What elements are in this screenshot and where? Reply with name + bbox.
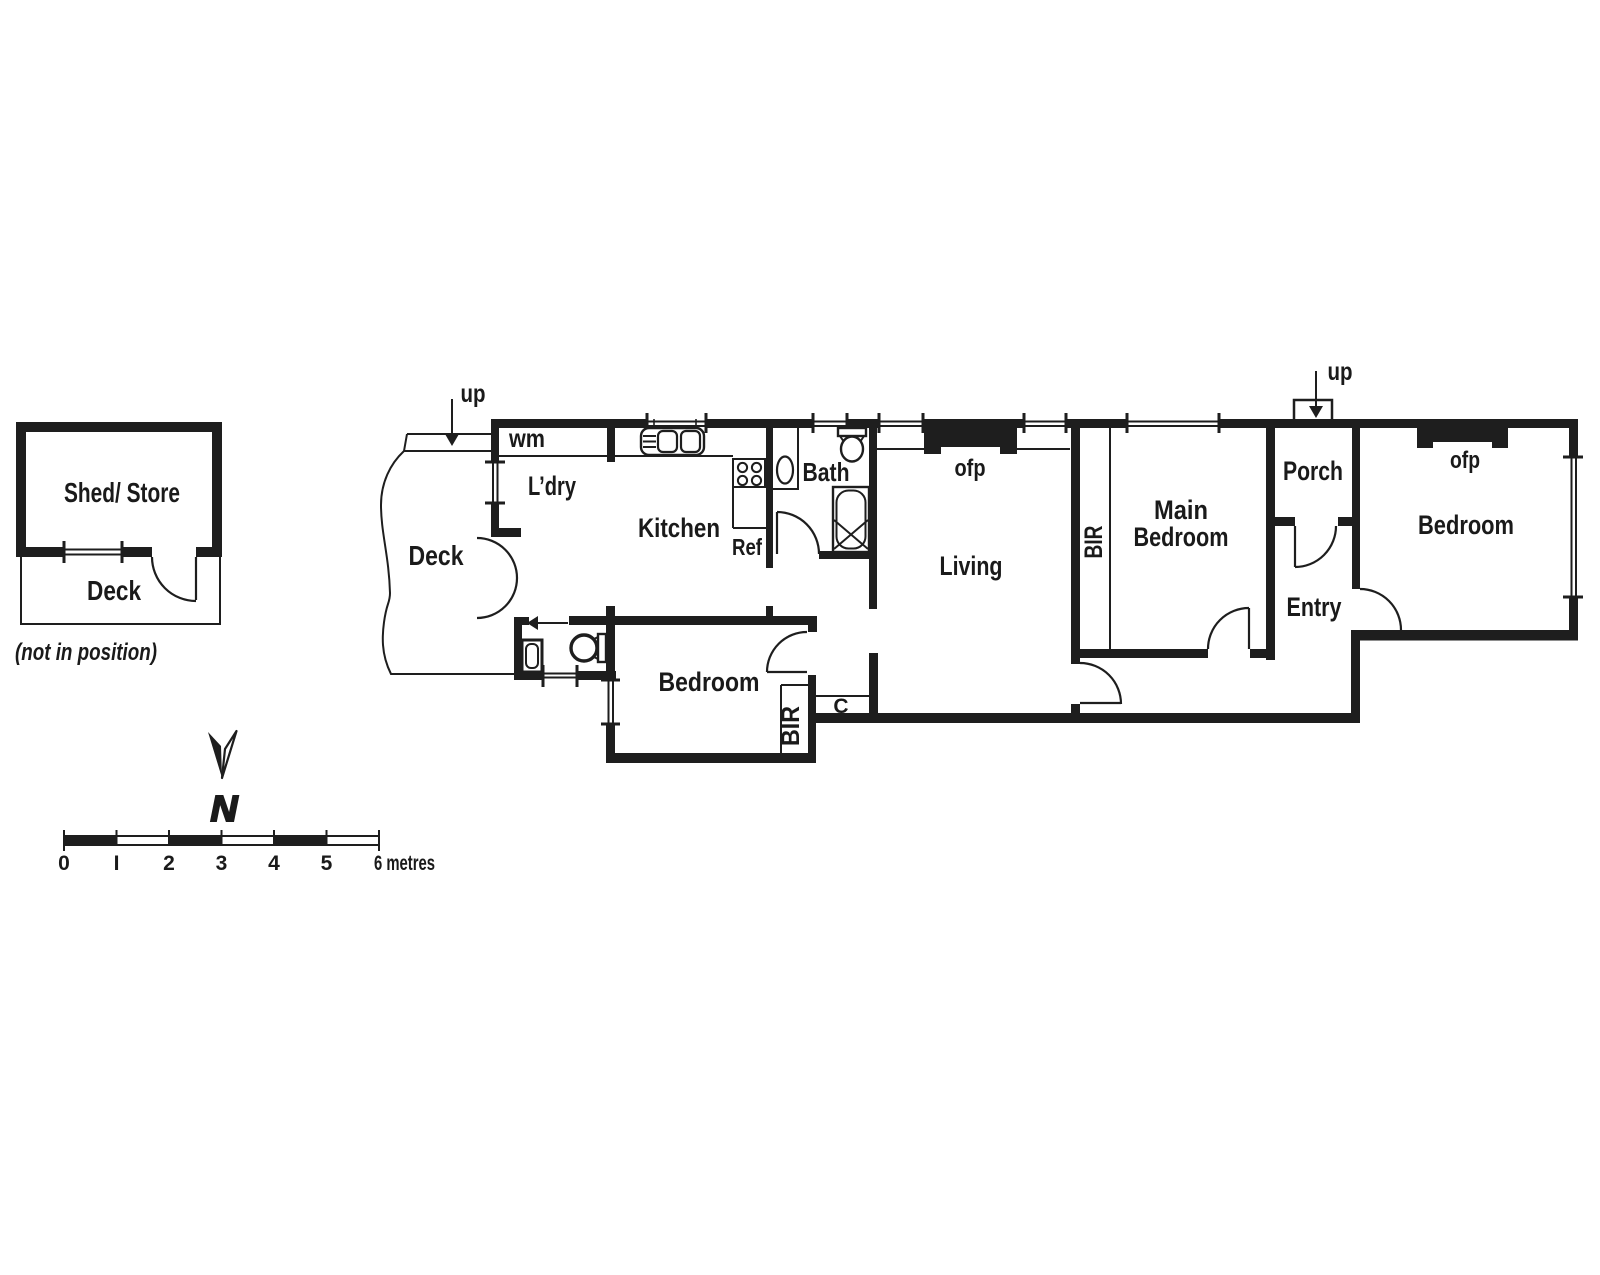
svg-text:ofp: ofp (1450, 447, 1480, 474)
svg-text:Shed/ Store: Shed/ Store (64, 477, 180, 508)
svg-text:BIR: BIR (777, 706, 805, 746)
svg-text:5: 5 (321, 852, 333, 875)
svg-text:up: up (461, 380, 486, 408)
svg-text:up: up (1328, 358, 1353, 386)
svg-text:BIR: BIR (1080, 526, 1108, 559)
svg-text:wm: wm (508, 425, 545, 453)
svg-text:Bedroom: Bedroom (659, 667, 760, 697)
svg-text:6 metres: 6 metres (374, 852, 435, 875)
svg-text:Kitchen: Kitchen (638, 513, 720, 543)
svg-text:Entry: Entry (1287, 592, 1342, 622)
svg-text:Main: Main (1154, 495, 1208, 525)
svg-text:0: 0 (58, 852, 70, 875)
svg-text:Ref: Ref (732, 534, 762, 560)
svg-text:Deck: Deck (87, 575, 141, 606)
svg-text:Living: Living (940, 551, 1003, 581)
svg-text:Bath: Bath (803, 457, 850, 487)
svg-text:Porch: Porch (1283, 456, 1343, 486)
svg-text:(not in position): (not in position) (15, 639, 157, 666)
svg-text:2: 2 (163, 852, 175, 875)
svg-text:Deck: Deck (409, 540, 464, 571)
svg-text:3: 3 (216, 852, 228, 875)
svg-text:I: I (114, 852, 120, 875)
svg-text:ofp: ofp (955, 455, 986, 482)
svg-text:L’dry: L’dry (528, 471, 576, 501)
svg-text:N: N (211, 788, 239, 829)
svg-text:Bedroom: Bedroom (1134, 522, 1229, 552)
svg-text:Bedroom: Bedroom (1418, 510, 1514, 540)
svg-text:4: 4 (268, 852, 280, 875)
